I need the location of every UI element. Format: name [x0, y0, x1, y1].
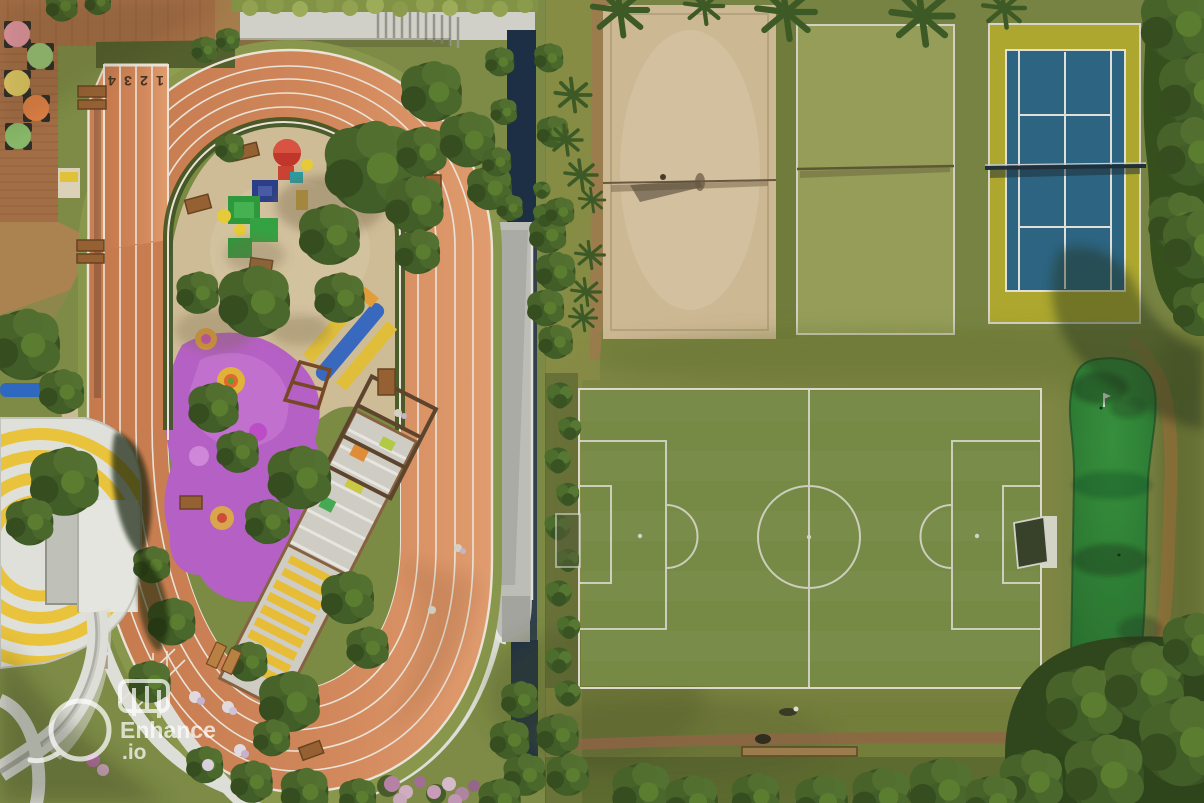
svg-text:Enhance: Enhance: [120, 717, 216, 743]
svg-text:.io: .io: [122, 741, 147, 764]
